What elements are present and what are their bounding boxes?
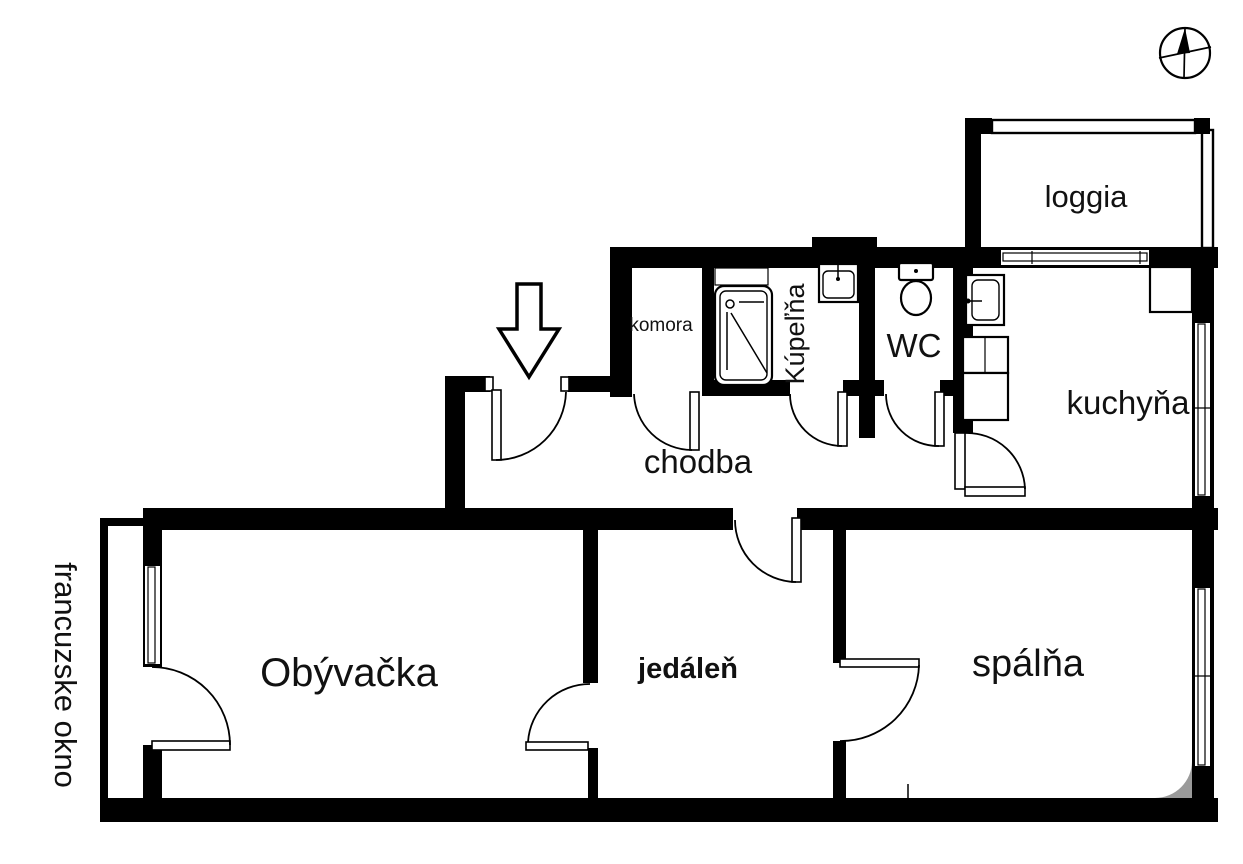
wall-entrance-right-seg	[568, 376, 632, 392]
wall-hall-bottom-left	[143, 508, 733, 530]
label-komora: komora	[629, 315, 693, 336]
wall-dining-bedroom	[833, 530, 846, 663]
bathtub-shower-symbol	[715, 268, 772, 385]
wall-dining-bedroom-stub	[833, 741, 846, 798]
kitchen-sink-symbol	[966, 275, 1005, 325]
window-kitchen	[1194, 322, 1211, 497]
label-spalna: spálňa	[972, 643, 1085, 685]
wall-living-left-bottom	[143, 745, 162, 800]
wall-hall-bottom-right	[797, 508, 1218, 530]
label-loggia: loggia	[1045, 179, 1128, 214]
label-wc: WC	[887, 327, 942, 364]
label-kupelna: Kúpeľňa	[780, 283, 810, 385]
wall-entrance-stub	[445, 376, 465, 510]
washbasin-symbol	[819, 262, 858, 302]
label-kuchyna: kuchyňa	[1067, 384, 1191, 421]
floorplan-canvas: loggia komora Kúpeľňa WC kuchyňa chodba …	[0, 0, 1243, 864]
kitchen-counter-symbol	[963, 337, 1008, 420]
french-window-frame-top	[100, 518, 160, 526]
loggia-railing-top	[992, 120, 1195, 133]
label-jedalen: jedáleň	[637, 653, 738, 685]
compass-north-icon	[1159, 28, 1211, 78]
french-window-frame-left	[100, 518, 108, 806]
label-french-window: francuzske okno	[48, 562, 83, 788]
wall-loggia-left	[965, 118, 981, 268]
window-bedroom	[1194, 587, 1211, 767]
wall-top-left	[610, 247, 1000, 268]
wall-loggia-corner-tl	[965, 118, 992, 134]
window-living-room	[144, 565, 161, 665]
wall-living-dining-stub	[588, 748, 598, 798]
wall-outer-bottom	[100, 798, 1218, 822]
wall-loggia-corner-tr	[1194, 118, 1210, 134]
wall-komora-bath-divider	[702, 268, 714, 388]
label-chodba: chodba	[644, 443, 753, 480]
wall-living-dining	[583, 530, 598, 683]
window-loggia-kitchen	[1000, 249, 1150, 266]
refrigerator-symbol	[1150, 267, 1192, 312]
toilet-symbol	[899, 263, 933, 315]
wall-bath-wc-divider	[859, 268, 875, 438]
loggia-railing-right	[1202, 130, 1213, 248]
label-obyvacka: Obývačka	[260, 651, 439, 695]
